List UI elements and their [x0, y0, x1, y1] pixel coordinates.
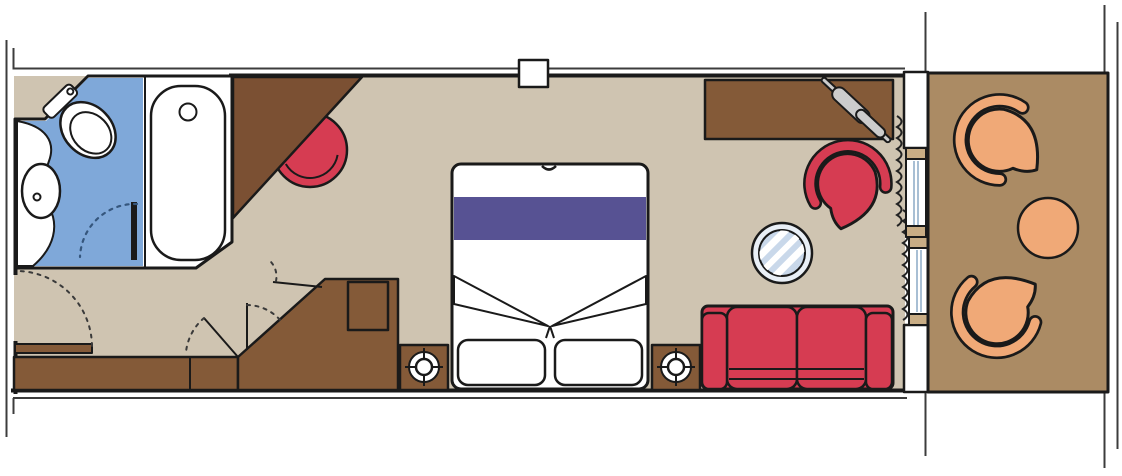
- fixed-window: [906, 148, 926, 237]
- double-bed-group: [452, 164, 648, 389]
- nightstand-left-group: [400, 345, 448, 390]
- balcony: [928, 73, 1108, 392]
- sofa-armrest-right: [866, 313, 892, 389]
- cabin-floor-plan: [0, 0, 1122, 476]
- glass-table: [752, 223, 812, 283]
- window-wall-lower: [904, 325, 928, 392]
- low-cabinet: [14, 357, 238, 390]
- sliding-door-frame-top: [909, 237, 929, 248]
- sofa-armrest-left: [702, 313, 727, 389]
- sofa-group: [702, 306, 893, 389]
- structural-column: [519, 60, 548, 87]
- pillow-left: [458, 340, 545, 385]
- window-wall-upper: [904, 72, 928, 148]
- sliding-door-body: [909, 237, 929, 325]
- pillow-right: [555, 340, 642, 385]
- bed-runner: [454, 197, 646, 240]
- low-cabinet-strip: [14, 357, 238, 390]
- sofa-cushion-left: [727, 307, 797, 389]
- bathtub-drain: [180, 104, 197, 121]
- desk-group: [705, 74, 894, 147]
- nightstand-right-group: [652, 345, 700, 390]
- entry-door: [15, 344, 92, 353]
- sliding-door-frame-bottom: [909, 314, 929, 325]
- floor-plan-page: [0, 0, 1122, 476]
- fixed-window-frame-top: [906, 148, 926, 159]
- fixed-window-body: [906, 148, 926, 237]
- balcony-table: [1018, 198, 1078, 258]
- sliding-door: [909, 237, 929, 325]
- bathroom: [15, 76, 232, 268]
- sofa-cushion-right: [797, 307, 866, 389]
- bed-head-notch: [542, 166, 556, 170]
- washbasin-drain: [34, 194, 41, 201]
- bathroom-door: [131, 202, 137, 260]
- washbasin: [22, 164, 60, 218]
- fixed-window-frame-bottom: [906, 226, 926, 237]
